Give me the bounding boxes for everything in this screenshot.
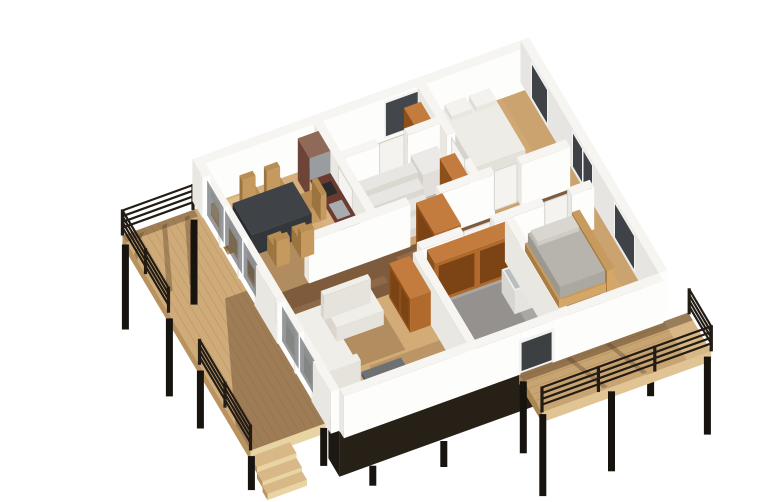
deck-stilt-3: [197, 371, 204, 429]
deck-stilt-2: [166, 318, 173, 396]
facade-stilt-1: [440, 441, 447, 467]
dining-chair-4-back: [298, 223, 314, 259]
walkway-stilt-1: [704, 357, 711, 435]
deck-stilt-1: [122, 245, 129, 330]
deck-stilt-5: [191, 220, 198, 305]
deck-stilt-6: [320, 428, 327, 466]
facade-stilt-2: [369, 466, 376, 486]
walkway-stilt-3: [539, 414, 546, 496]
floor-plan-render-stage: [0, 0, 781, 502]
walkway-stilt-4: [520, 381, 527, 453]
walkway-stilt-2: [608, 391, 615, 471]
hall-door-bedroom-north: [494, 163, 517, 210]
deck-stilt-4: [248, 456, 255, 490]
isometric-house-floor-plan: [0, 0, 781, 502]
dining-chair-5-back: [274, 232, 290, 268]
